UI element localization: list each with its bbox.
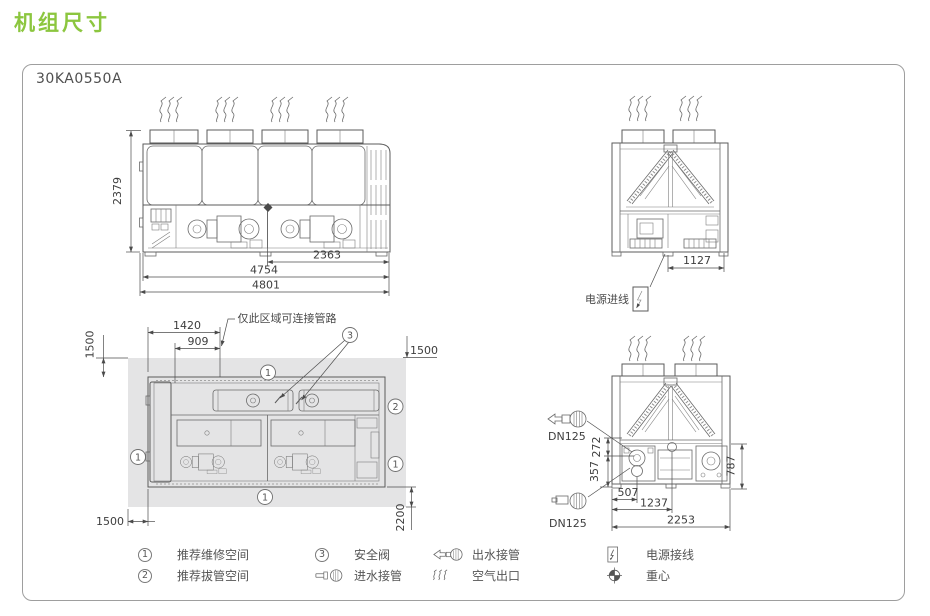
center-of-gravity-icon <box>607 566 637 585</box>
legend-item-water-outlet: 出水接管 <box>433 546 607 563</box>
drawing-panel: 30KA0550A <box>22 64 905 601</box>
callout-3-symbol: 3 <box>315 548 329 562</box>
legend-label: 进水接管 <box>354 567 402 584</box>
legend-item-power-wiring: 电源接线 <box>607 546 694 563</box>
callout-2-symbol: 2 <box>138 569 152 583</box>
water-outlet-icon <box>433 546 463 563</box>
legend-label: 推荐拔管空间 <box>177 567 249 584</box>
callout-1-symbol: 1 <box>138 548 152 562</box>
legend-label: 推荐维修空间 <box>177 546 249 563</box>
page-title: 机组尺寸 <box>14 7 110 37</box>
legend-item-center-of-gravity: 重心 <box>607 567 694 584</box>
model-label: 30KA0550A <box>36 71 122 87</box>
legend-label: 电源接线 <box>646 546 694 563</box>
page: 机组尺寸 30KA0550A <box>0 0 930 616</box>
legend-label: 空气出口 <box>472 567 520 584</box>
legend-label: 安全阀 <box>354 546 390 563</box>
air-outlet-icon <box>433 568 463 583</box>
legend-item-air-outlet: 空气出口 <box>433 567 607 584</box>
legend-label: 重心 <box>646 567 670 584</box>
legend-item-safety-valve: 3 安全阀 <box>315 546 433 563</box>
water-inlet-icon <box>315 567 345 584</box>
legend-item-tube-removal-space: 2 推荐拔管空间 <box>138 567 315 584</box>
legend-label: 出水接管 <box>472 546 520 563</box>
legend-item-water-inlet: 进水接管 <box>315 567 433 584</box>
legend: 1 推荐维修空间 3 安全阀 出水接管 <box>138 546 694 584</box>
power-wiring-icon <box>607 545 637 564</box>
legend-item-service-space: 1 推荐维修空间 <box>138 546 315 563</box>
